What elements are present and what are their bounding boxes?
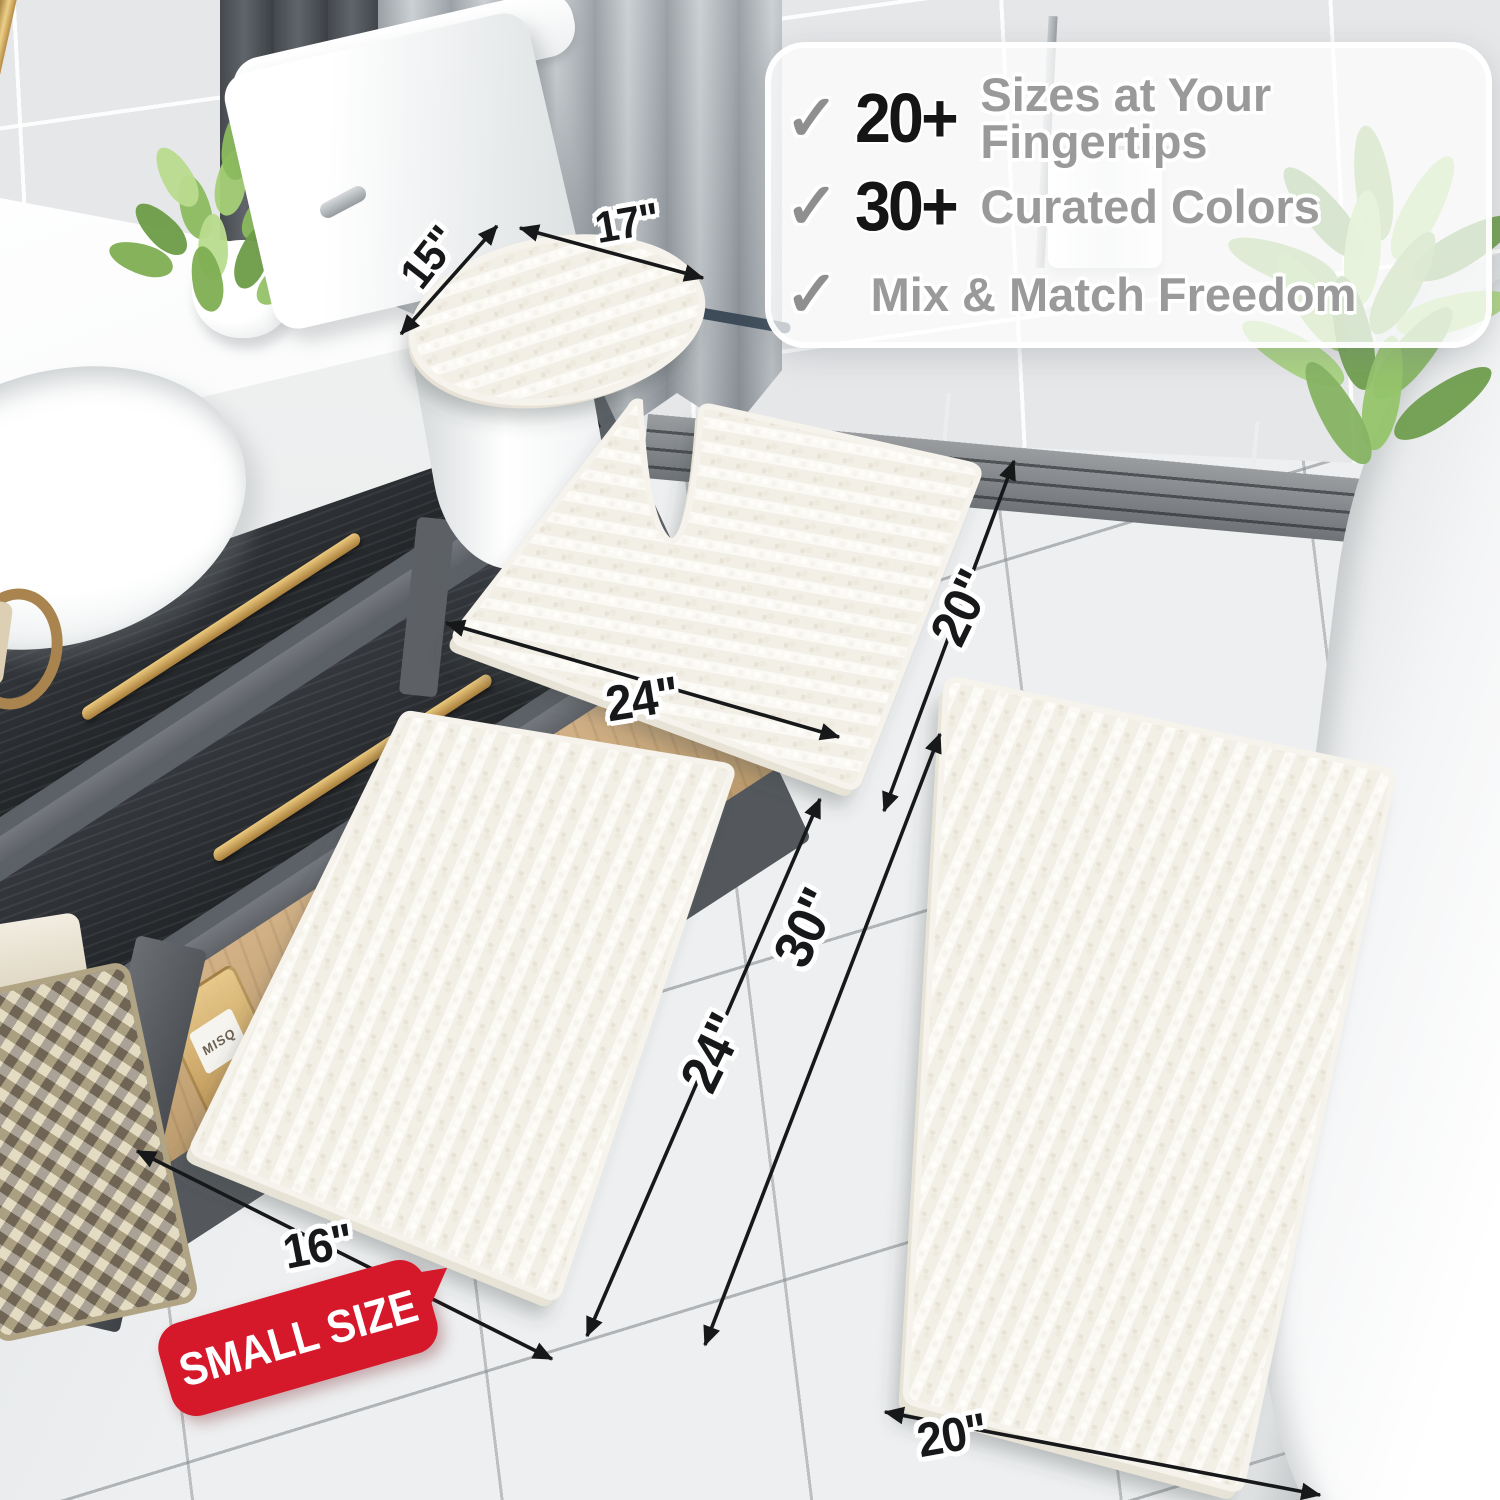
panel-number: 30+ xyxy=(855,171,956,241)
panel-label: Sizes at Your Fingertips xyxy=(980,71,1486,165)
bathroom-scene: MISQ xyxy=(0,0,1500,1500)
panel-row: ✓ 30+ Curated Colors xyxy=(785,162,1486,250)
dim-label-contour-width: 24" xyxy=(602,665,683,734)
panel-row: ✓ 20+ Sizes at Your Fingertips xyxy=(785,74,1486,162)
check-icon: ✓ xyxy=(785,174,839,238)
check-icon: ✓ xyxy=(785,262,839,326)
panel-label: Mix & Match Freedom xyxy=(871,271,1357,318)
panel-row: ✓ Mix & Match Freedom xyxy=(785,250,1486,338)
large-rug xyxy=(899,680,1392,1499)
check-icon: ✓ xyxy=(785,86,839,150)
panel-label: Curated Colors xyxy=(980,183,1320,230)
panel-number: 20+ xyxy=(855,83,956,153)
feature-panel: ✓ 20+ Sizes at Your Fingertips ✓ 30+ Cur… xyxy=(765,42,1492,348)
